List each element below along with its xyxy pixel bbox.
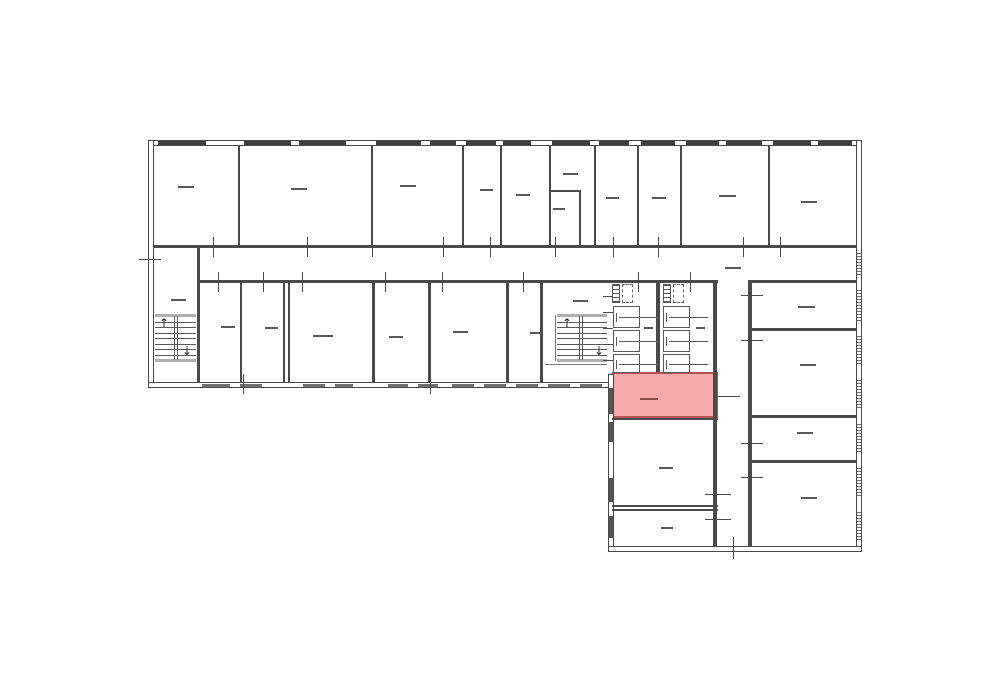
door-tick xyxy=(705,519,731,520)
room-label-mark-top-7 xyxy=(606,197,619,199)
wall-top-part-1 xyxy=(238,146,240,246)
window-north xyxy=(430,141,456,145)
door-tick xyxy=(307,237,308,257)
window-south-upper xyxy=(484,384,506,387)
room-label-mark-right-3 xyxy=(797,432,813,434)
window-south-upper xyxy=(580,384,602,387)
door-tick xyxy=(218,272,219,292)
wall-top-part-3 xyxy=(462,146,464,246)
door-tick xyxy=(443,237,444,257)
door-tick xyxy=(716,396,740,397)
door-tick xyxy=(442,272,443,292)
door-tick xyxy=(603,344,613,345)
door-tick xyxy=(780,237,781,257)
door-tick xyxy=(705,494,731,495)
window-north xyxy=(158,141,206,145)
window-north xyxy=(773,141,811,145)
wall-corridor-south xyxy=(197,280,718,283)
room-label-mark-bottom-5 xyxy=(453,331,468,333)
floor-plan-stage: ↑↓↑↓ xyxy=(0,0,1000,699)
wall-outer-left-upper xyxy=(148,140,154,388)
wall-corridor-north xyxy=(154,245,856,248)
wc-vestibule-dashed xyxy=(622,284,633,303)
door-tick xyxy=(603,296,613,297)
room-label-mark-stairwell-west xyxy=(171,299,186,301)
room-right-3[interactable] xyxy=(752,418,856,460)
wc-door-leaf[interactable] xyxy=(669,364,708,365)
wall-top-part-6 xyxy=(594,146,596,246)
window-west-lower xyxy=(609,388,613,414)
door-tick xyxy=(523,272,524,292)
wall-outer-bottom-lower xyxy=(608,546,862,552)
room-label-mark-lower-1 xyxy=(659,467,673,469)
wc-door-hinge xyxy=(616,313,617,322)
window-north xyxy=(299,141,346,145)
room-label-mark-bottom-6 xyxy=(530,332,543,334)
room-bottom-4[interactable] xyxy=(375,283,428,382)
wall-lower-div-2b xyxy=(612,509,718,511)
room-label-mark-top-10 xyxy=(801,201,817,203)
floor-plan-drawing: ↑↓↑↓ xyxy=(0,0,1000,699)
window-north xyxy=(599,141,629,145)
wall-top-part-4 xyxy=(500,146,502,246)
wall-right-div-1 xyxy=(752,328,856,331)
door-tick xyxy=(743,237,744,257)
wall-rightwing-north xyxy=(748,280,856,283)
room-label-mark-right-1 xyxy=(798,306,815,308)
wall-closet-top xyxy=(551,190,581,192)
wall-stair2-landing-edge xyxy=(545,364,607,365)
door-tick xyxy=(741,443,763,444)
wall-top-part-5 xyxy=(549,146,551,246)
stair-lobby-stringer xyxy=(579,316,580,360)
stair-lobby-down-arrow: ↓ xyxy=(594,346,604,358)
room-label-mark-selected xyxy=(640,398,658,400)
window-west-lower xyxy=(609,478,613,502)
room-label-mark-top-9 xyxy=(719,195,736,197)
wall-right-div-3 xyxy=(752,460,856,463)
wc-door-hinge xyxy=(666,360,667,369)
window-north xyxy=(726,141,762,145)
shaft xyxy=(663,284,671,303)
wc-door-leaf[interactable] xyxy=(619,317,658,318)
window-north xyxy=(376,141,421,145)
window-south-upper xyxy=(335,384,353,387)
stair-west-bottom-edge xyxy=(155,359,196,362)
wall-toilet-mid xyxy=(656,283,660,372)
door-tick xyxy=(658,237,659,257)
wall-bot-part-1 xyxy=(240,283,242,382)
door-tick xyxy=(638,272,639,292)
window-west-lower xyxy=(609,516,613,538)
room-top-4[interactable] xyxy=(464,146,500,245)
room-label-mark-top-1 xyxy=(178,186,194,188)
window-east xyxy=(856,424,862,454)
door-tick xyxy=(613,237,614,257)
door-tick xyxy=(741,295,763,296)
window-east xyxy=(856,336,862,366)
window-east xyxy=(856,290,862,322)
window-south-upper xyxy=(202,384,230,387)
room-label-mark-top-4 xyxy=(480,189,493,191)
door-tick xyxy=(385,272,386,292)
door-tick xyxy=(263,272,264,292)
window-west-lower xyxy=(609,422,613,442)
wall-top-part-2 xyxy=(371,146,373,246)
wc-door-hinge xyxy=(616,337,617,346)
wall-right-div-2 xyxy=(752,415,856,418)
window-east xyxy=(856,380,862,410)
window-south-upper xyxy=(452,384,474,387)
wall-top-part-8 xyxy=(680,146,682,246)
window-north xyxy=(466,141,496,145)
room-top-1[interactable] xyxy=(154,146,238,245)
room-label-mark-right-2 xyxy=(800,364,816,366)
highlighted-room[interactable] xyxy=(612,372,718,418)
door-tick xyxy=(741,477,763,478)
door-tick xyxy=(139,259,161,260)
stair-west-stringer xyxy=(174,316,175,360)
room-label-mark-top-6 xyxy=(563,173,578,175)
window-north xyxy=(552,141,590,145)
room-top-2[interactable] xyxy=(240,146,371,245)
wall-stair2-west-edge xyxy=(555,315,556,361)
wc-door-hinge xyxy=(666,337,667,346)
room-right-4[interactable] xyxy=(752,463,856,544)
room-label-mark-bottom-3 xyxy=(313,335,333,337)
door-tick xyxy=(430,374,431,394)
window-north xyxy=(244,141,291,145)
room-label-mark-wc-right xyxy=(696,327,705,329)
wall-stair1-east xyxy=(197,248,200,382)
wall-closet-right xyxy=(579,190,581,247)
door-tick xyxy=(555,237,556,257)
room-label-mark-top-8 xyxy=(652,197,666,199)
window-south-upper xyxy=(516,384,538,387)
wc-vestibule-dashed xyxy=(673,284,684,303)
wc-door-leaf[interactable] xyxy=(619,364,658,365)
wall-bot-part-5 xyxy=(506,283,509,382)
wc-door-hinge xyxy=(616,360,617,369)
door-tick xyxy=(733,537,734,559)
room-top-10[interactable] xyxy=(770,146,856,245)
room-label-mark-lower-2 xyxy=(661,527,673,529)
door-tick xyxy=(603,360,613,361)
door-tick xyxy=(213,237,214,257)
window-east xyxy=(856,512,862,542)
room-label-mark-top-5 xyxy=(516,194,530,196)
window-north xyxy=(641,141,675,145)
window-south-upper xyxy=(548,384,570,387)
window-south-upper xyxy=(303,384,325,387)
room-label-mark-bottom-4 xyxy=(389,336,403,338)
door-tick xyxy=(243,374,244,394)
door-tick xyxy=(690,272,691,292)
wc-door-leaf[interactable] xyxy=(619,341,658,342)
room-bottom-3[interactable] xyxy=(290,283,372,382)
room-label-mark-corridor xyxy=(725,267,741,269)
room-label-mark-stair-lobby xyxy=(573,300,588,302)
window-north xyxy=(503,141,531,145)
room-corridor[interactable] xyxy=(197,248,856,280)
room-label-mark-top-2 xyxy=(291,188,307,190)
door-tick xyxy=(372,237,373,257)
stair-lobby-stringer xyxy=(582,316,583,360)
stair-west-tread xyxy=(155,333,196,334)
wall-lower-div-1 xyxy=(612,418,718,420)
wall-top-part-7 xyxy=(637,146,639,246)
wall-bot-part-4 xyxy=(428,283,431,382)
window-north xyxy=(686,141,719,145)
wall-top-part-9 xyxy=(768,146,770,246)
stair-west-down-arrow: ↓ xyxy=(182,346,192,358)
room-right-2[interactable] xyxy=(752,331,856,415)
wall-bot-part-3 xyxy=(372,283,375,382)
room-bottom-5[interactable] xyxy=(431,283,506,382)
window-east xyxy=(856,468,862,498)
room-bottom-2[interactable] xyxy=(242,283,283,382)
door-tick xyxy=(603,312,613,313)
window-north xyxy=(818,141,852,145)
stair-lobby-up-arrow: ↑ xyxy=(562,318,572,330)
room-top-7[interactable] xyxy=(596,146,637,245)
door-tick xyxy=(490,237,491,257)
door-tick xyxy=(603,328,613,329)
window-south-upper xyxy=(418,384,438,387)
room-bottom-1[interactable] xyxy=(200,283,240,382)
wc-door-leaf[interactable] xyxy=(669,317,708,318)
shaft xyxy=(612,284,620,303)
room-label-mark-top-3 xyxy=(400,185,416,187)
wc-door-leaf[interactable] xyxy=(669,341,708,342)
room-label-mark-top-6-closet xyxy=(553,208,565,210)
stair-west-stringer xyxy=(177,316,178,360)
window-south-upper xyxy=(388,384,408,387)
wc-door-hinge xyxy=(666,313,667,322)
room-label-mark-wc-left xyxy=(644,327,653,329)
room-label-mark-bottom-2 xyxy=(265,327,278,329)
door-tick xyxy=(302,272,303,292)
room-label-mark-bottom-1 xyxy=(221,326,235,328)
stair-west-tread xyxy=(155,338,196,339)
wall-lower-div-2a xyxy=(612,505,718,507)
room-top-3[interactable] xyxy=(373,146,462,245)
window-east xyxy=(856,253,862,277)
wall-bot-part-2b xyxy=(288,283,290,382)
room-lower-1[interactable] xyxy=(612,418,714,505)
room-top-8[interactable] xyxy=(639,146,680,245)
stair-west-up-arrow: ↑ xyxy=(159,318,169,330)
room-label-mark-right-4 xyxy=(801,497,817,499)
door-tick xyxy=(741,340,763,341)
wall-bot-part-2a xyxy=(283,283,285,382)
